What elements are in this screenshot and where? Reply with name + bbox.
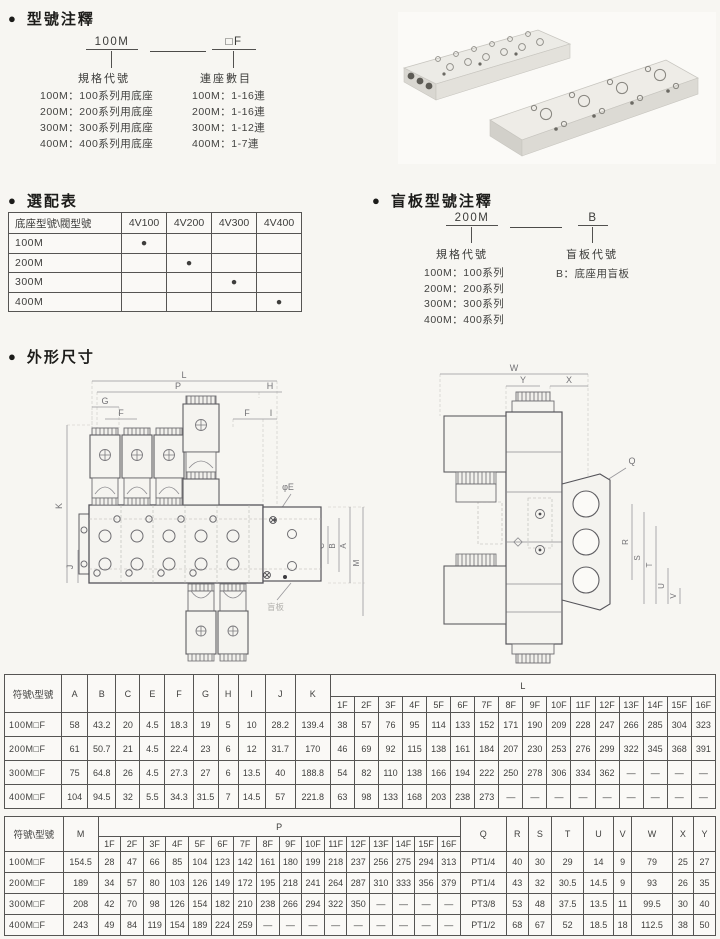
value-cell: 50.7 [88, 737, 116, 761]
value-cell: 31.5 [193, 785, 218, 809]
value-cell [167, 292, 212, 312]
value-cell: 313 [437, 852, 460, 873]
column-header: 10F [302, 837, 325, 852]
column-header: 9F [523, 697, 547, 713]
column-header: 1F [98, 837, 121, 852]
section-title-text: 型號注釋 [27, 11, 95, 28]
dim-label-F: F [118, 408, 124, 418]
column-header: F [165, 675, 193, 713]
dimension-drawing-side: W Y X Q R S T U V [420, 352, 700, 669]
column-header: X [672, 817, 694, 852]
value-cell: ● [212, 273, 257, 293]
value-cell: 98 [354, 785, 378, 809]
value-cell: 54 [330, 761, 354, 785]
value-cell: 273 [475, 785, 499, 809]
table-row: 100M□F154.528476685104123142161180199218… [5, 852, 716, 873]
value-cell: 25 [672, 852, 694, 873]
value-cell: 67 [528, 915, 552, 936]
value-cell: 218 [324, 852, 347, 873]
value-cell: 9 [613, 873, 632, 894]
column-header: 4V100 [122, 213, 167, 234]
value-cell: 43.2 [88, 713, 116, 737]
column-header: Y [694, 817, 716, 852]
list-item: 200M：200系列用底座 [40, 104, 153, 120]
value-cell: — [437, 894, 460, 915]
column-header: 4F [403, 697, 427, 713]
column-header: 6F [211, 837, 234, 852]
row-label: 200M [9, 253, 122, 273]
column-header: 7F [475, 697, 499, 713]
value-cell: 64.8 [88, 761, 116, 785]
value-cell: 27.3 [165, 761, 193, 785]
value-cell: 66 [143, 852, 166, 873]
column-header: 13F [370, 837, 393, 852]
value-cell: 333 [392, 873, 415, 894]
value-cell: 34 [98, 873, 121, 894]
value-cell: 48 [528, 894, 552, 915]
value-cell: 99.5 [632, 894, 672, 915]
value-cell: PT1/4 [460, 852, 506, 873]
value-cell: 28.2 [265, 713, 295, 737]
column-header: U [584, 817, 614, 852]
corner-header: 符號\型號 [5, 675, 62, 713]
value-cell: 264 [324, 873, 347, 894]
column-header: 16F [691, 697, 715, 713]
section-title-dimensions: ●外形尺寸 [8, 346, 95, 367]
value-cell: PT1/2 [460, 915, 506, 936]
value-cell [212, 292, 257, 312]
value-cell: 345 [643, 737, 667, 761]
value-cell: — [595, 785, 619, 809]
value-cell: 18.3 [165, 713, 193, 737]
column-header: 8F [256, 837, 279, 852]
value-cell: 209 [547, 713, 571, 737]
value-cell: — [370, 915, 393, 936]
value-cell: 208 [63, 894, 98, 915]
value-cell: 139.4 [295, 713, 330, 737]
column-header: K [295, 675, 330, 713]
value-cell: 104 [189, 852, 212, 873]
value-cell: 57 [265, 785, 295, 809]
column-header: 7F [234, 837, 257, 852]
corner-header: 底座型號\閥型號 [9, 213, 122, 234]
value-cell: 241 [302, 873, 325, 894]
dim-label-L: L [181, 370, 186, 380]
column-header: G [193, 675, 218, 713]
column-header: 14F [392, 837, 415, 852]
value-cell: 356 [415, 873, 438, 894]
value-cell [167, 273, 212, 293]
list-item: 100M：1-16連 [192, 88, 265, 104]
value-cell: 126 [189, 873, 212, 894]
value-cell: 18.5 [584, 915, 614, 936]
value-cell [167, 234, 212, 254]
dim-label-P: P [175, 381, 181, 391]
value-cell: 238 [256, 894, 279, 915]
blind-code-dash [510, 227, 562, 228]
value-cell: 180 [279, 852, 302, 873]
column-header: S [528, 817, 552, 852]
table-row: 300M□F2084270981261541822102382662943223… [5, 894, 716, 915]
dim-label-phiE: φE [282, 482, 294, 492]
value-cell: PT3/8 [460, 894, 506, 915]
list-item: 100M：100系列用底座 [40, 88, 153, 104]
value-cell: 6 [218, 737, 238, 761]
dim-label-H: H [267, 381, 274, 391]
value-cell: — [499, 785, 523, 809]
value-cell: 12 [238, 737, 265, 761]
list-item: 400M：400系列用底座 [40, 136, 153, 152]
value-cell: 47 [121, 852, 144, 873]
dim-label-X: X [566, 375, 572, 385]
column-header: R [506, 817, 528, 852]
column-header: 16F [437, 837, 460, 852]
value-cell: 133 [378, 785, 402, 809]
dim-label-F2: F [244, 408, 250, 418]
value-cell: 37.5 [552, 894, 584, 915]
value-cell: ● [122, 234, 167, 254]
value-cell: — [619, 785, 643, 809]
value-cell: 31.7 [265, 737, 295, 761]
row-label: 300M [9, 273, 122, 293]
value-cell: 154 [189, 894, 212, 915]
value-cell: 294 [302, 894, 325, 915]
value-cell: 35 [694, 873, 716, 894]
value-cell: 7 [218, 785, 238, 809]
value-cell: 21 [116, 737, 140, 761]
value-cell: 142 [234, 852, 257, 873]
column-header: H [218, 675, 238, 713]
bullet-icon: ● [8, 11, 18, 26]
value-cell: 98 [143, 894, 166, 915]
value-cell: 22.4 [165, 737, 193, 761]
group-header: P [98, 817, 460, 837]
value-cell: 203 [427, 785, 451, 809]
column-header: 11F [324, 837, 347, 852]
value-cell: 170 [295, 737, 330, 761]
corner-header: 符號\型號 [5, 817, 64, 852]
diagram-stem [233, 51, 234, 68]
value-cell: 4.5 [140, 737, 165, 761]
value-cell: 133 [451, 713, 475, 737]
value-cell: 207 [499, 737, 523, 761]
value-cell: 323 [691, 713, 715, 737]
value-cell: 247 [595, 713, 619, 737]
value-cell: 32 [528, 873, 552, 894]
value-cell: 11 [613, 894, 632, 915]
value-cell: 119 [143, 915, 166, 936]
column-header: 2F [121, 837, 144, 852]
value-cell [212, 253, 257, 273]
value-cell: 18 [613, 915, 632, 936]
dim-label-U: U [657, 583, 666, 589]
value-cell: 4.5 [140, 713, 165, 737]
table-row: 200M□F6150.7214.522.42361231.71704669921… [5, 737, 716, 761]
value-cell: 166 [427, 761, 451, 785]
value-cell: 138 [427, 737, 451, 761]
value-cell: 276 [571, 737, 595, 761]
value-cell: 172 [234, 873, 257, 894]
value-cell: 14.5 [584, 873, 614, 894]
section-title-selection: ●選配表 [8, 190, 78, 211]
column-header: 14F [643, 697, 667, 713]
value-cell: 13.5 [238, 761, 265, 785]
value-cell: 138 [403, 761, 427, 785]
value-cell: 123 [211, 852, 234, 873]
value-cell: 26 [116, 761, 140, 785]
value-cell: 322 [619, 737, 643, 761]
dim-label-R: R [621, 539, 630, 545]
column-header: 4V400 [257, 213, 302, 234]
value-cell: 50 [694, 915, 716, 936]
column-header: 9F [279, 837, 302, 852]
column-header: T [552, 817, 584, 852]
station-count-list: 100M：1-16連 200M：1-16連 300M：1-12連 400M：1-… [192, 88, 265, 152]
value-cell: 14.5 [238, 785, 265, 809]
value-cell: 285 [643, 713, 667, 737]
value-cell: 266 [619, 713, 643, 737]
value-cell: — [392, 894, 415, 915]
value-cell: 154 [166, 915, 189, 936]
column-header: J [265, 675, 295, 713]
value-cell [257, 253, 302, 273]
table-row: 400M□F10494.5325.534.331.5714.557221.863… [5, 785, 716, 809]
row-label: 400M [9, 292, 122, 312]
row-label: 300M□F [5, 894, 64, 915]
value-cell: 182 [211, 894, 234, 915]
selection-table: 底座型號\閥型號4V1004V2004V3004V400100M●200M●30… [8, 212, 302, 312]
column-header: 1F [330, 697, 354, 713]
spec-code-label: 規格代號 [436, 246, 488, 262]
value-cell: — [370, 894, 393, 915]
row-label: 400M□F [5, 915, 64, 936]
value-cell: 27 [694, 852, 716, 873]
dim-label-B: B [328, 543, 337, 548]
column-header: C [116, 675, 140, 713]
value-cell: 4.5 [140, 761, 165, 785]
value-cell: 58 [62, 713, 88, 737]
row-label: 100M□F [5, 852, 64, 873]
value-cell: 42 [98, 894, 121, 915]
bullet-icon: ● [372, 193, 382, 208]
value-cell: 63 [330, 785, 354, 809]
blind-spec-list: 100M：100系列 200M：200系列 300M：300系列 400M：40… [424, 266, 504, 328]
dim-label-W: W [510, 363, 519, 373]
section-title-text: 選配表 [27, 193, 78, 210]
dim-label-I: I [270, 408, 273, 418]
list-item: 200M：200系列 [424, 282, 504, 298]
spec-code-list: 100M：100系列用底座 200M：200系列用底座 300M：300系列用底… [40, 88, 153, 152]
value-cell: 68 [506, 915, 528, 936]
value-cell: 38 [330, 713, 354, 737]
list-item: 400M：400系列 [424, 313, 504, 329]
value-cell: 38 [672, 915, 694, 936]
blind-plate-callout: 盲板 [267, 602, 285, 612]
value-cell: — [667, 761, 691, 785]
value-cell: 61 [62, 737, 88, 761]
column-header: B [88, 675, 116, 713]
column-header: 4F [166, 837, 189, 852]
value-cell: 171 [499, 713, 523, 737]
value-cell: 75 [62, 761, 88, 785]
column-header: 15F [415, 837, 438, 852]
value-cell: 57 [354, 713, 378, 737]
value-cell: 93 [632, 873, 672, 894]
value-cell: 19 [193, 713, 218, 737]
value-cell: 23 [193, 737, 218, 761]
value-cell: 40 [694, 894, 716, 915]
dim-label-Q: Q [628, 456, 635, 466]
value-cell: — [619, 761, 643, 785]
value-cell: 115 [403, 737, 427, 761]
value-cell: 40 [506, 852, 528, 873]
table-row: 300M● [9, 273, 302, 293]
value-cell: 194 [451, 761, 475, 785]
value-cell: ● [257, 292, 302, 312]
blind-code-base: 200M [446, 212, 498, 226]
value-cell: 310 [370, 873, 393, 894]
value-cell: 9 [613, 852, 632, 873]
dim-label-Y: Y [520, 375, 526, 385]
value-cell: 230 [523, 737, 547, 761]
value-cell: 189 [63, 873, 98, 894]
value-cell: 30 [672, 894, 694, 915]
value-cell: — [392, 915, 415, 936]
value-cell: 391 [691, 737, 715, 761]
value-cell: 152 [475, 713, 499, 737]
bullet-icon: ● [8, 193, 18, 208]
value-cell: 287 [347, 873, 370, 894]
column-header: 11F [571, 697, 595, 713]
list-item: 300M：300系列用底座 [40, 120, 153, 136]
value-cell: 161 [256, 852, 279, 873]
row-label: 100M□F [5, 713, 62, 737]
value-cell: 6 [218, 761, 238, 785]
value-cell: 299 [595, 737, 619, 761]
value-cell: 84 [121, 915, 144, 936]
value-cell: — [302, 915, 325, 936]
list-item: 100M：100系列 [424, 266, 504, 282]
value-cell: 294 [415, 852, 438, 873]
column-header: 6F [451, 697, 475, 713]
dim-label-A: A [339, 543, 348, 549]
value-cell: — [643, 785, 667, 809]
column-header: 5F [427, 697, 451, 713]
dim-label-T: T [645, 562, 654, 567]
value-cell: 14 [584, 852, 614, 873]
value-cell: 154.5 [63, 852, 98, 873]
column-header: 10F [547, 697, 571, 713]
row-label: 100M [9, 234, 122, 254]
value-cell: 195 [256, 873, 279, 894]
value-cell: 82 [354, 761, 378, 785]
dim-label-S: S [633, 555, 642, 560]
value-cell: 334 [571, 761, 595, 785]
value-cell: — [324, 915, 347, 936]
value-cell: 243 [63, 915, 98, 936]
section-title-model-notes: ●型號注釋 [8, 8, 95, 29]
dimension-table-1: 符號\型號ABCEFGHIJKL1F2F3F4F5F6F7F8F9F10F11F… [4, 674, 716, 809]
list-item: 200M：1-16連 [192, 104, 265, 120]
list-item: B：底座用盲板 [556, 266, 630, 282]
row-label: 200M□F [5, 737, 62, 761]
group-header: L [330, 675, 715, 697]
column-header: 15F [667, 697, 691, 713]
value-cell: PT1/4 [460, 873, 506, 894]
column-header: V [613, 817, 632, 852]
dimension-table-2: 符號\型號MPQRSTUVWXY1F2F3F4F5F6F7F8F9F10F11F… [4, 816, 716, 936]
column-header: A [62, 675, 88, 713]
value-cell: — [571, 785, 595, 809]
value-cell: 43 [506, 873, 528, 894]
value-cell: 28 [98, 852, 121, 873]
value-cell: — [691, 761, 715, 785]
value-cell: 362 [595, 761, 619, 785]
column-header: 4V300 [212, 213, 257, 234]
value-cell: 70 [121, 894, 144, 915]
value-cell: 103 [166, 873, 189, 894]
value-cell: 221.8 [295, 785, 330, 809]
value-cell: — [523, 785, 547, 809]
column-header: 8F [499, 697, 523, 713]
value-cell: 92 [378, 737, 402, 761]
value-cell: — [415, 915, 438, 936]
list-item: 300M：300系列 [424, 297, 504, 313]
value-cell: 79 [632, 852, 672, 873]
value-cell: 76 [378, 713, 402, 737]
value-cell [122, 273, 167, 293]
column-header: I [238, 675, 265, 713]
dim-label-V: V [669, 593, 678, 599]
catalog-page: ●型號注釋 100M □F 規格代號 連座數目 100M：100系列用底座 20… [0, 0, 720, 939]
column-header: 3F [378, 697, 402, 713]
value-cell: 57 [121, 873, 144, 894]
blind-code-label: 盲板代號 [566, 246, 618, 262]
value-cell: 49 [98, 915, 121, 936]
value-cell: 114 [427, 713, 451, 737]
value-cell: 368 [667, 737, 691, 761]
list-item: 400M：1-7連 [192, 136, 265, 152]
dim-label-K: K [54, 503, 64, 509]
column-header: 3F [143, 837, 166, 852]
value-cell: 199 [302, 852, 325, 873]
model-code-stations: □F [212, 36, 256, 50]
value-cell: 161 [451, 737, 475, 761]
value-cell: 250 [499, 761, 523, 785]
dimension-drawing-front: L P H G F F I φE K J C B A M 盲板 [45, 368, 385, 673]
section-title-text: 盲板型號注釋 [391, 193, 493, 210]
value-cell: 149 [211, 873, 234, 894]
value-cell: 29 [552, 852, 584, 873]
station-count-label: 連座數目 [200, 70, 252, 86]
blind-code-list: B：底座用盲板 [556, 266, 630, 282]
row-label: 200M□F [5, 873, 64, 894]
value-cell: 253 [547, 737, 571, 761]
value-cell: 278 [523, 761, 547, 785]
value-cell: 5.5 [140, 785, 165, 809]
value-cell: 306 [547, 761, 571, 785]
column-header: 2F [354, 697, 378, 713]
value-cell: 32 [116, 785, 140, 809]
value-cell: 112.5 [632, 915, 672, 936]
value-cell: 5 [218, 713, 238, 737]
value-cell: 188.8 [295, 761, 330, 785]
diagram-stem [592, 227, 593, 243]
section-title-text: 外形尺寸 [27, 349, 95, 366]
value-cell: 350 [347, 894, 370, 915]
value-cell: 184 [475, 737, 499, 761]
value-cell: — [643, 761, 667, 785]
